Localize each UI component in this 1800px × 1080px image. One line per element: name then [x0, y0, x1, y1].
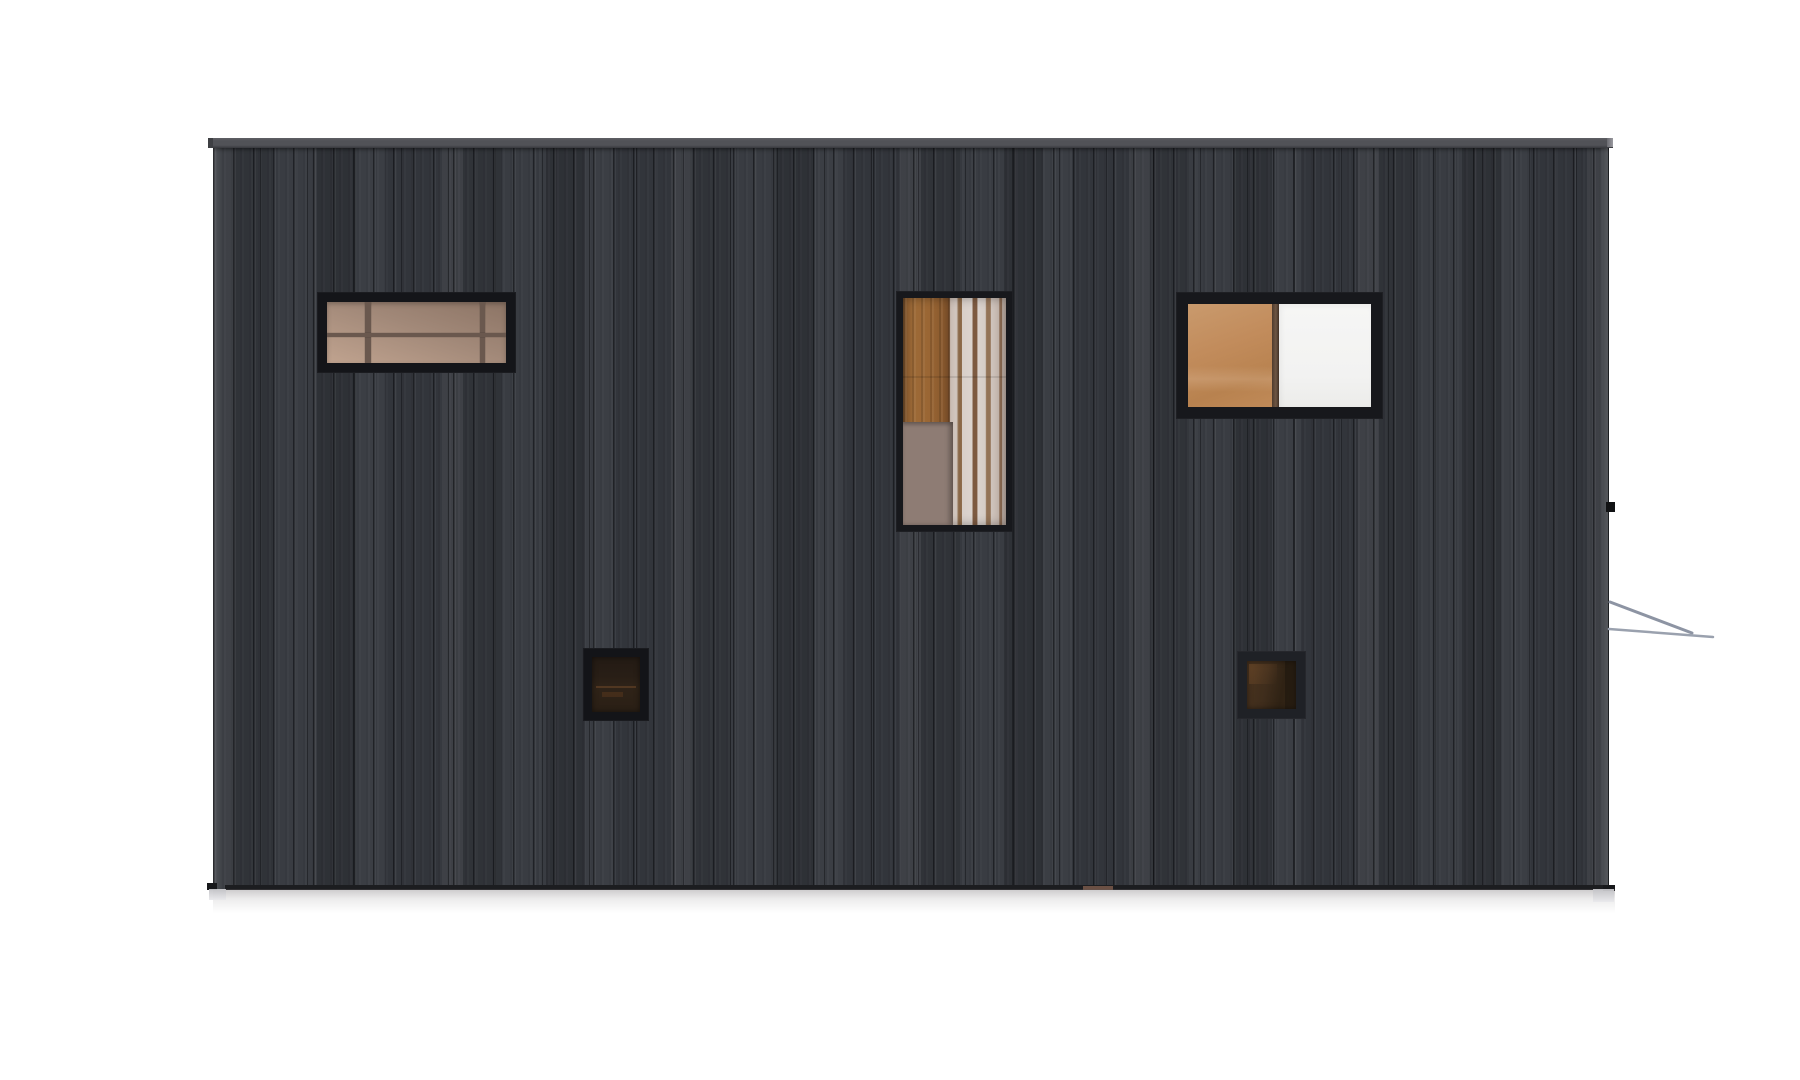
white-pane	[1279, 304, 1371, 407]
window-tall-glazing	[903, 298, 1006, 525]
interior-highlight	[1249, 664, 1277, 684]
interior-counter	[903, 422, 953, 525]
footing-left	[209, 889, 226, 900]
window-small-left	[583, 648, 649, 721]
railing-diagonal-line	[1610, 602, 1692, 633]
window-split-glazing	[1188, 304, 1371, 407]
muntin-horizontal	[327, 333, 506, 337]
window-split-pane	[1176, 292, 1383, 419]
window-tall	[896, 291, 1013, 532]
pane-divider	[1272, 304, 1279, 407]
elevation-canvas	[0, 0, 1800, 1080]
amber-pane	[1188, 304, 1272, 407]
railing-lines	[1600, 590, 1730, 650]
window-small-right-glazing	[1247, 661, 1296, 709]
interior-shelf	[602, 692, 624, 698]
roof-cap-flashing	[208, 138, 1613, 148]
window-small-left-glazing	[592, 657, 640, 712]
railing-horizontal-line	[1609, 629, 1713, 637]
window-clerestory	[317, 292, 516, 373]
wall-fixture-tick	[1606, 502, 1615, 512]
interior-shadow-strip	[1285, 661, 1296, 709]
interior-shelf	[596, 686, 636, 689]
window-small-right	[1237, 651, 1306, 719]
ground-shadow	[213, 889, 1615, 913]
window-clerestory-glazing	[327, 302, 506, 363]
footing-right	[1593, 889, 1614, 902]
glass-seam	[903, 376, 1006, 378]
